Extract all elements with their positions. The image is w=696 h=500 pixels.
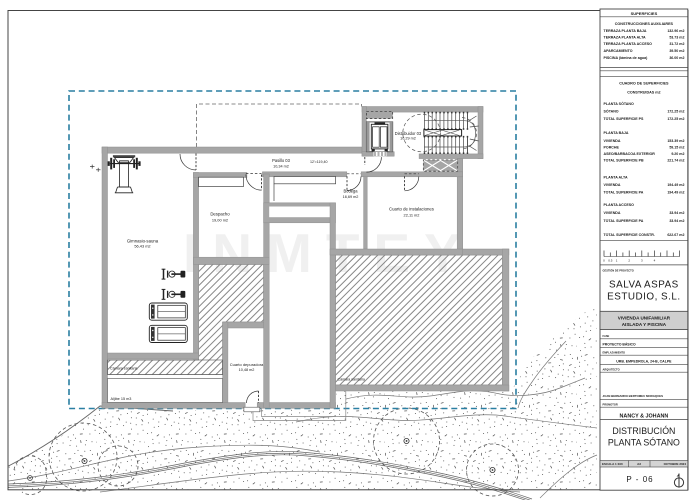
svg-text:22,11 m2: 22,11 m2	[404, 212, 420, 217]
svg-text:VIVIENDA: VIVIENDA	[604, 211, 621, 215]
svg-text:Cámara sanitaria: Cámara sanitaria	[338, 377, 365, 381]
svg-text:VIVIENDA UNIFAMILIAR: VIVIENDA UNIFAMILIAR	[618, 315, 671, 320]
svg-text:Bodega: Bodega	[343, 189, 358, 194]
svg-text:SUPERFICIES: SUPERFICIES	[631, 11, 658, 16]
svg-text:TOTAL SUPERFICIE CONSTR.: TOTAL SUPERFICIE CONSTR.	[604, 233, 655, 237]
svg-text:10,34 m2: 10,34 m2	[273, 164, 289, 168]
svg-text:ESTUDIO, S.L.: ESTUDIO, S.L.	[607, 291, 680, 302]
svg-text:AISLADA Y PISCINA: AISLADA Y PISCINA	[622, 322, 667, 327]
svg-text:172.25 m2: 172.25 m2	[667, 117, 684, 121]
svg-text:NANCY & JOHANN: NANCY & JOHANN	[620, 413, 669, 419]
svg-text:221.74 m2: 221.74 m2	[667, 159, 684, 163]
svg-text:53.73 m2: 53.73 m2	[669, 35, 684, 39]
svg-text:39.50 m2: 39.50 m2	[669, 49, 684, 53]
svg-text:ASEO/BARBACOA EXTERIOR: ASEO/BARBACOA EXTERIOR	[604, 152, 656, 156]
svg-text:TOTAL SUPERFICIE PA: TOTAL SUPERFICIE PA	[604, 191, 644, 195]
svg-text:VIVIENDA: VIVIENDA	[604, 139, 621, 143]
svg-text:59.15 m2: 59.15 m2	[669, 146, 684, 150]
svg-text:TERRAZA PLANTA BAJA: TERRAZA PLANTA BAJA	[604, 29, 647, 33]
svg-text:Cuarto de instalaciones: Cuarto de instalaciones	[389, 207, 434, 212]
svg-text:ESCALA 1:100: ESCALA 1:100	[602, 462, 623, 466]
svg-text:12'=119,40: 12'=119,40	[310, 160, 328, 164]
svg-text:TOTAL SUPERFICIE PB: TOTAL SUPERFICIE PB	[604, 159, 645, 163]
svg-text:EMPLAZAMIENTO: EMPLAZAMIENTO	[603, 351, 626, 355]
svg-text:SALVA ASPAS: SALVA ASPAS	[609, 280, 679, 291]
svg-text:194.49 m2: 194.49 m2	[667, 183, 684, 187]
svg-text:PISCINA (lámina de agua): PISCINA (lámina de agua)	[604, 56, 649, 60]
svg-text:TOTAL SUPERFICIE PA: TOTAL SUPERFICIE PA	[604, 219, 644, 223]
svg-text:A3: A3	[637, 462, 641, 466]
svg-text:622.67 m2: 622.67 m2	[667, 233, 684, 237]
svg-text:TERRAZA PLANTA ALTA: TERRAZA PLANTA ALTA	[604, 35, 647, 39]
svg-text:TERRAZA PLANTA ACCESO: TERRAZA PLANTA ACCESO	[604, 42, 653, 46]
svg-text:P - 06: P - 06	[626, 475, 653, 484]
svg-text:CONSTRUCCIONES AUXILIARES: CONSTRUCCIONES AUXILIARES	[615, 22, 674, 26]
svg-text:PLANTA SÓTANO: PLANTA SÓTANO	[608, 438, 680, 448]
svg-text:URB. EMPEDROLA, 24-B, CALPE: URB. EMPEDROLA, 24-B, CALPE	[616, 359, 672, 363]
svg-text:Distribuidor 03: Distribuidor 03	[395, 131, 422, 136]
svg-text:SÓTANO: SÓTANO	[604, 109, 619, 114]
svg-text:Despacho: Despacho	[210, 212, 230, 217]
svg-text:0.5: 0.5	[608, 259, 613, 263]
svg-text:PLANTA SÓTANO: PLANTA SÓTANO	[604, 101, 634, 106]
svg-text:56,43 m2: 56,43 m2	[134, 244, 150, 249]
svg-text:31.72 m2: 31.72 m2	[669, 42, 684, 46]
svg-text:CONSTRUIDAS m2: CONSTRUIDAS m2	[627, 90, 660, 94]
svg-text:33.94 m2: 33.94 m2	[669, 219, 684, 223]
svg-text:APARCAMIENTO: APARCAMIENTO	[604, 49, 633, 53]
svg-text:DISTRIBUCIÓN: DISTRIBUCIÓN	[612, 426, 675, 436]
svg-text:Gimnasio-sauna: Gimnasio-sauna	[127, 238, 159, 243]
svg-text:JUAN BERNARDO BERTOMEU MORAQUE: JUAN BERNARDO BERTOMEU MORAQUES	[603, 394, 664, 398]
svg-text:PROYECTO BÁSICO: PROYECTO BÁSICO	[603, 341, 636, 346]
svg-text:194.49 m2: 194.49 m2	[667, 191, 684, 195]
svg-text:10,29 m2: 10,29 m2	[400, 136, 416, 140]
svg-text:172.25 m2: 172.25 m2	[667, 110, 684, 114]
svg-text:153.39 m2: 153.39 m2	[667, 139, 684, 143]
svg-text:CUADRO DE SUPERFICIES: CUADRO DE SUPERFICIES	[619, 82, 669, 86]
svg-text:FASE: FASE	[603, 334, 610, 338]
svg-text:16,69 m2: 16,69 m2	[343, 195, 359, 199]
svg-text:132.96 m2: 132.96 m2	[667, 29, 684, 33]
svg-text:ARQUITECTO: ARQUITECTO	[603, 368, 620, 372]
svg-text:33.94 m2: 33.94 m2	[669, 211, 684, 215]
svg-text:OCTUBRE 2024: OCTUBRE 2024	[664, 462, 687, 466]
svg-text:Cámara sanitaria: Cámara sanitaria	[110, 367, 137, 371]
svg-text:PLANTA ALTA: PLANTA ALTA	[604, 175, 628, 179]
svg-text:PLANTA ACCESO: PLANTA ACCESO	[604, 203, 635, 207]
svg-text:Aljibe 15 m3: Aljibe 15 m3	[111, 397, 132, 401]
svg-text:Pasillo 03: Pasillo 03	[272, 158, 290, 163]
svg-text:PORCHE: PORCHE	[604, 146, 620, 150]
svg-text:Cuarto depuradora: Cuarto depuradora	[230, 362, 264, 367]
svg-text:TOTAL SUPERFICIE PS: TOTAL SUPERFICIE PS	[604, 117, 645, 121]
svg-text:VIVIENDA: VIVIENDA	[604, 183, 621, 187]
svg-text:PROMOTOR: PROMOTOR	[603, 403, 618, 407]
svg-text:9.20 m2: 9.20 m2	[671, 152, 684, 156]
svg-text:PLANTA BAJA: PLANTA BAJA	[604, 131, 629, 135]
svg-text:10,48 m2: 10,48 m2	[239, 368, 255, 372]
svg-text:36.00 m2: 36.00 m2	[669, 56, 684, 60]
svg-text:19,00 m2: 19,00 m2	[212, 217, 228, 222]
